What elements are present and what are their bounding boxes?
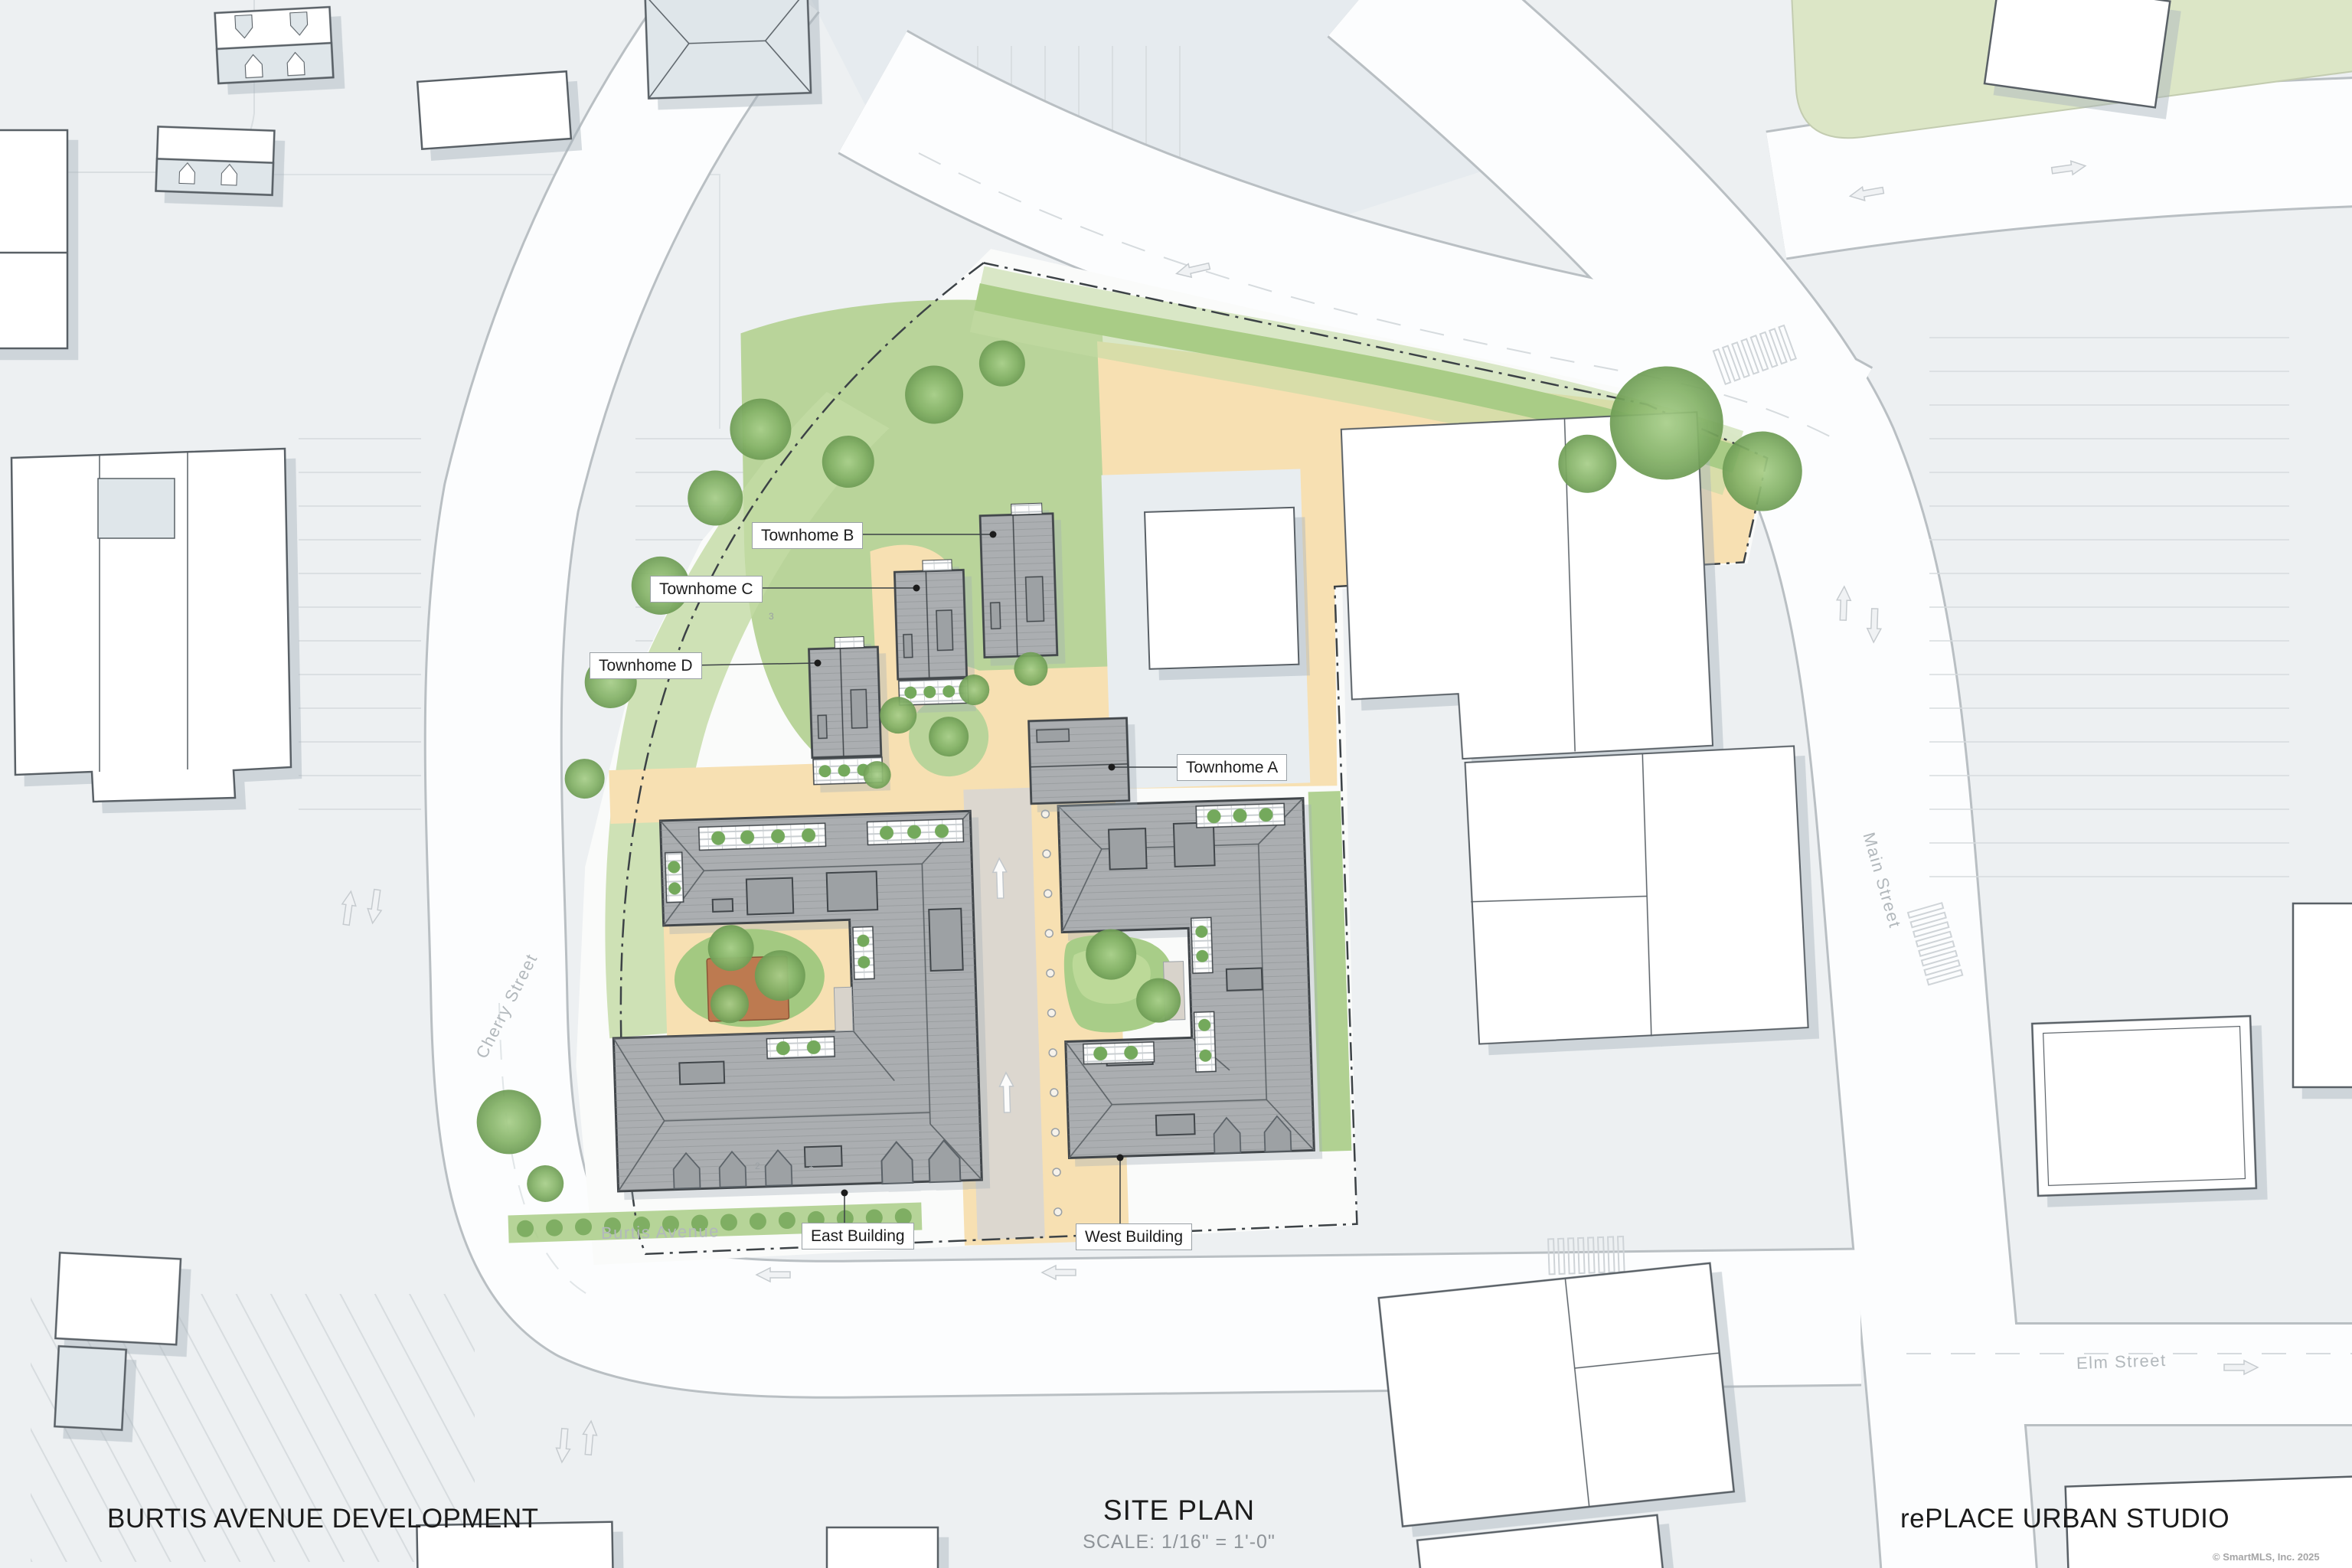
context-building-topleft-1: [215, 7, 334, 83]
lot-number-2: 2: [755, 1161, 760, 1171]
parking-stripes-right: [1929, 329, 2289, 880]
townhome-b-roof: [980, 503, 1057, 658]
lot-number-1: 1: [808, 1159, 814, 1170]
label-west-building: West Building: [1076, 1223, 1192, 1250]
context-building-top-center: [645, 0, 812, 99]
label-townhome-c: Townhome C: [650, 576, 763, 603]
drawing-title: SITE PLAN: [1011, 1494, 1347, 1527]
parking-stripes-left: [299, 429, 421, 842]
label-townhome-b: Townhome B: [752, 522, 863, 549]
street-name-burtis: Burtis Avenue: [601, 1221, 720, 1243]
firm-name: rePLACE URBAN STUDIO: [1900, 1504, 2229, 1534]
label-east-building: East Building: [802, 1223, 914, 1249]
townhome-a-roof: [1029, 718, 1129, 804]
drawing-scale: SCALE: 1/16" = 1'-0": [1011, 1531, 1347, 1553]
drawing-title-block: SITE PLAN SCALE: 1/16" = 1'-0": [1011, 1494, 1347, 1553]
townhome-c-roof: [894, 559, 969, 705]
label-townhome-d: Townhome D: [590, 652, 702, 679]
label-townhome-a: Townhome A: [1177, 754, 1287, 781]
copyright-notice: © SmartMLS, Inc. 2025: [2213, 1551, 2320, 1563]
context-building-midleft: [11, 449, 291, 802]
context-building-bottom-right: [1379, 1263, 1747, 1568]
street-name-elm: Elm Street: [2076, 1351, 2167, 1374]
project-title: BURTIS AVENUE DEVELOPMENT: [107, 1504, 539, 1534]
site-plan-drawing: [0, 0, 2352, 1568]
site-plan-page: Townhome B Townhome C Townhome D Townhom…: [0, 0, 2352, 1568]
context-building-topleft-2: [156, 126, 275, 194]
lot-number-3: 3: [769, 611, 774, 622]
